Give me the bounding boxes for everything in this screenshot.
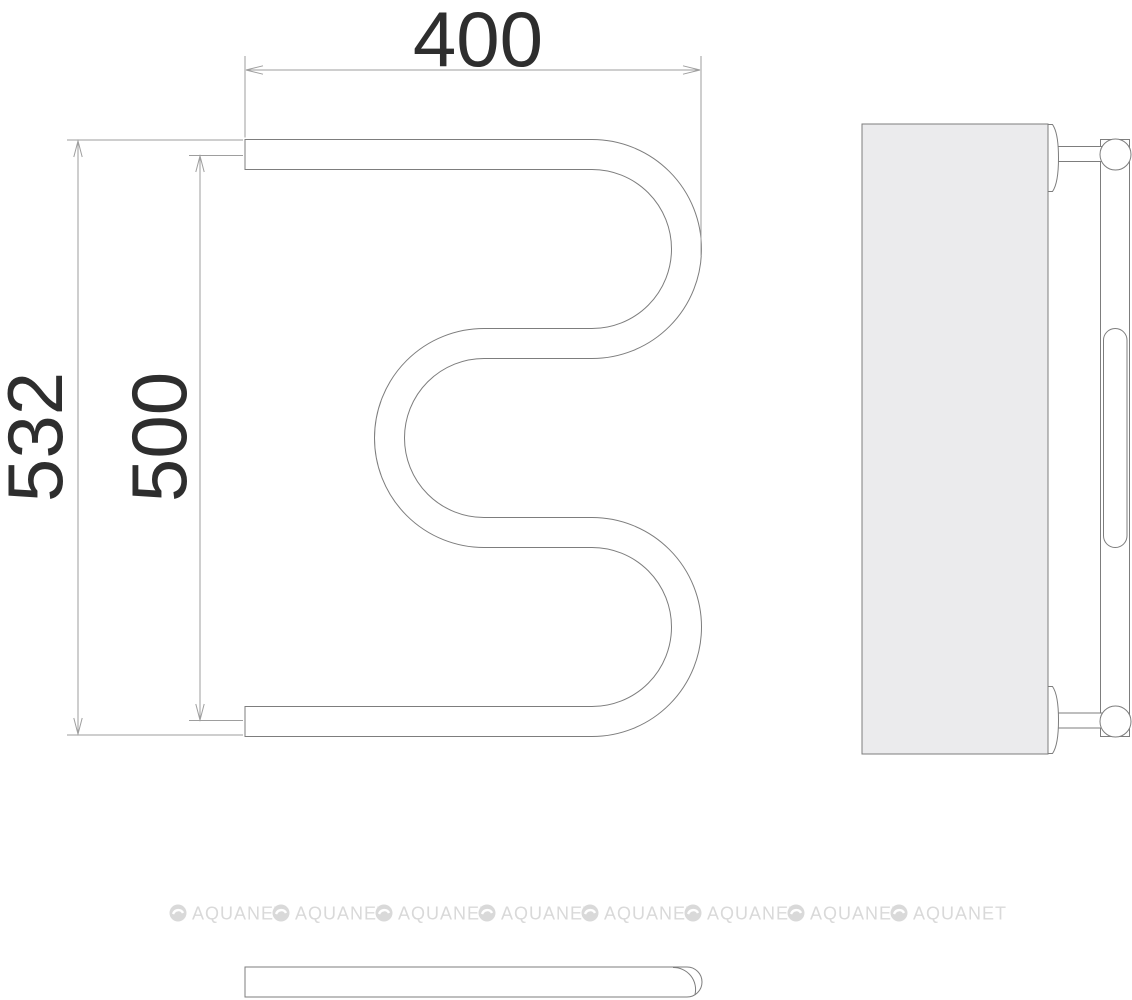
technical-drawing-page: 400 532 500	[0, 0, 1132, 1000]
aquanet-disc-icon	[891, 905, 908, 922]
watermark: AQUANET	[788, 904, 905, 924]
watermark: AQUANET	[376, 904, 493, 924]
aquanet-disc-icon	[685, 905, 702, 922]
dimension-label-532: 532	[0, 372, 79, 502]
watermark-text: AQUANET	[295, 904, 389, 924]
watermark: AQUANET	[582, 904, 699, 924]
watermark-text: AQUANET	[810, 904, 904, 924]
bracket-plate-bottom	[1048, 687, 1059, 754]
watermark-text: AQUANET	[501, 904, 595, 924]
aquanet-disc-icon	[376, 905, 393, 922]
rail-top-outline	[245, 967, 702, 997]
watermark-text: AQUANET	[913, 904, 1007, 924]
bracket-arm-bottom	[1052, 713, 1102, 728]
bracket-ball-bottom	[1100, 706, 1131, 737]
dimension-400: 400	[245, 0, 701, 256]
rail-inner-bend-slot	[1104, 329, 1128, 548]
watermark-text: AQUANET	[604, 904, 698, 924]
watermark-text: AQUANET	[707, 904, 801, 924]
towel-rail-dimension-drawing: 400 532 500	[0, 0, 1132, 1000]
watermark: AQUANET	[273, 904, 390, 924]
watermark-row: AQUANET AQUANET AQUANET AQUANET AQUANET …	[170, 904, 1008, 924]
aquanet-disc-icon	[170, 905, 187, 922]
bracket-plate-top	[1048, 125, 1059, 192]
watermark: AQUANET	[170, 904, 287, 924]
watermark-text: AQUANET	[398, 904, 492, 924]
dimension-500: 500	[115, 156, 243, 721]
aquanet-disc-icon	[582, 905, 599, 922]
dimension-label-500: 500	[115, 372, 203, 502]
side-view	[862, 124, 1131, 754]
aquanet-disc-icon	[273, 905, 290, 922]
wall-panel	[862, 124, 1048, 754]
dimension-label-400: 400	[413, 0, 543, 83]
bracket-arm-top	[1052, 147, 1102, 162]
watermark: AQUANET	[685, 904, 802, 924]
aquanet-disc-icon	[788, 905, 805, 922]
bracket-ball-top	[1100, 139, 1131, 170]
watermark-text: AQUANET	[192, 904, 286, 924]
front-view	[245, 140, 702, 737]
aquanet-disc-icon	[479, 905, 496, 922]
towel-rail-front-outline	[245, 140, 702, 737]
watermark: AQUANET	[891, 904, 1008, 924]
top-view	[245, 967, 702, 997]
watermark: AQUANET	[479, 904, 596, 924]
